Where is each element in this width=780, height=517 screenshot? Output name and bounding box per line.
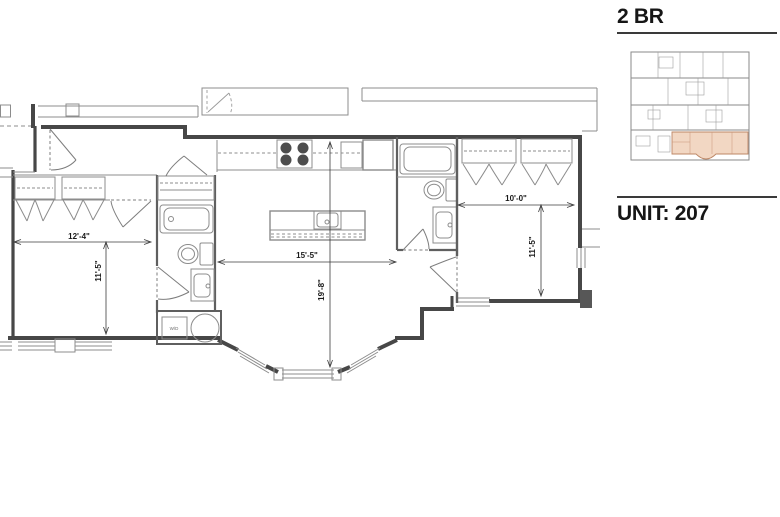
island-sink-icon (314, 211, 341, 229)
dim-label-living-width: 15'-5" (296, 251, 318, 260)
refrigerator-icon (363, 140, 393, 170)
dim-living-depth (328, 142, 333, 367)
dim-bedroom2-depth (539, 205, 544, 296)
dim-bedroom2-width (458, 203, 574, 208)
kitchen-island (270, 211, 365, 240)
sink-vanity-icon (433, 207, 457, 243)
dim-label-bedroom1-depth: 11'-5" (94, 260, 103, 281)
neighbor-door (207, 90, 232, 114)
dim-bedroom1-depth (104, 242, 109, 334)
bathtub-icon (160, 205, 213, 233)
neighbor-unit-outline (202, 88, 597, 131)
bathroom2 (397, 137, 457, 250)
bedroom1-closets (13, 175, 157, 221)
floor-plan-svg: W/D (0, 0, 612, 517)
bedroom2-door (430, 256, 457, 292)
bedroom1-entry-door (111, 200, 151, 227)
floorplan-page: W/D (0, 0, 780, 517)
toilet-icon (178, 243, 213, 265)
stove-icon (277, 140, 312, 168)
wall-pier (580, 290, 592, 308)
bay-glazing (236, 348, 380, 380)
dim-label-living-depth: 19'-8" (317, 279, 326, 301)
dimensions (14, 142, 574, 367)
washer-dryer-label: W/D (170, 326, 179, 331)
floor-plan: W/D (0, 0, 612, 517)
bedroom1-windows (0, 339, 112, 352)
divider-top (617, 32, 777, 34)
dim-label-bedroom1-width: 12'-4" (68, 232, 90, 241)
unit-number-title: UNIT: 207 (617, 202, 709, 226)
dim-living-width (218, 260, 396, 265)
corridor-walls (0, 104, 198, 126)
dim-label-bedroom2-depth: 11'-5" (528, 236, 537, 257)
bathroom1 (157, 205, 214, 301)
bathtub-icon (400, 144, 455, 174)
bedroom2-closets (462, 139, 572, 185)
bathroom1-door (157, 267, 189, 299)
divider-bottom (617, 196, 777, 198)
dim-label-bedroom2-width: 10'-0" (505, 194, 527, 203)
toilet-icon (424, 179, 457, 201)
entry-door (50, 129, 76, 170)
unit-type-title: 2 BR (617, 5, 664, 29)
sink-vanity-icon (191, 269, 214, 301)
linen-closet (158, 156, 214, 200)
cabinet (341, 142, 362, 168)
kitchen (217, 140, 397, 240)
unit-207-highlight (672, 132, 748, 159)
sidebar: 2 BR (612, 0, 780, 517)
bay-window (218, 340, 397, 380)
building-key-plan (628, 48, 760, 166)
bathroom2-door (403, 229, 429, 250)
